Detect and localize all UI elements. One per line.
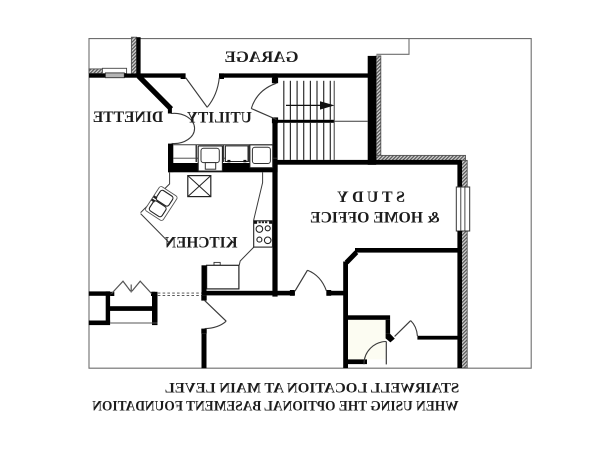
- svg-text:GARAGE: GARAGE: [225, 49, 299, 66]
- svg-text:WHEN USING THE OPTIONAL BASEME: WHEN USING THE OPTIONAL BASEMENT FOUNDAT…: [92, 399, 458, 415]
- svg-text:DINETTE: DINETTE: [93, 109, 164, 126]
- svg-text:& HOME OFFICE: & HOME OFFICE: [310, 210, 440, 227]
- svg-text:STAIRWELL LOCATION AT MAIN LEV: STAIRWELL LOCATION AT MAIN LEVEL: [165, 380, 460, 396]
- svg-text:KITCHEN: KITCHEN: [165, 234, 238, 251]
- svg-text:UTILITY: UTILITY: [186, 109, 251, 126]
